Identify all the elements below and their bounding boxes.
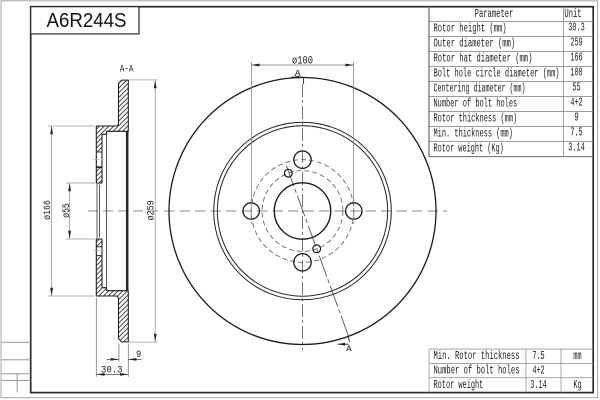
svg-text:7.5: 7.5 bbox=[532, 350, 544, 363]
svg-text:30.3: 30.3 bbox=[568, 22, 584, 35]
svg-text:ø259: ø259 bbox=[145, 200, 157, 220]
svg-text:Rotor height (mm): Rotor height (mm) bbox=[434, 23, 507, 36]
svg-text:Number of bolt holes: Number of bolt holes bbox=[434, 98, 518, 111]
svg-text:Bolt hole circle diameter (mm): Bolt hole circle diameter (mm) bbox=[434, 68, 560, 81]
svg-text:A6R244S: A6R244S bbox=[47, 9, 127, 32]
svg-text:Number of bolt holes: Number of bolt holes bbox=[434, 365, 520, 378]
svg-text:3.14: 3.14 bbox=[568, 142, 584, 155]
svg-text:100: 100 bbox=[570, 67, 582, 80]
svg-text:Parameter: Parameter bbox=[475, 8, 514, 21]
svg-text:9: 9 bbox=[136, 349, 141, 361]
svg-text:Rotor weight (Kg): Rotor weight (Kg) bbox=[434, 143, 504, 156]
svg-text:Rotor hat diameter (mm): Rotor hat diameter (mm) bbox=[434, 53, 533, 66]
svg-text:Centering diameter (mm): Centering diameter (mm) bbox=[434, 83, 526, 96]
svg-text:3.14: 3.14 bbox=[530, 379, 546, 392]
svg-text:4+2: 4+2 bbox=[570, 97, 582, 110]
svg-text:Outer diameter (mm): Outer diameter (mm) bbox=[434, 38, 516, 51]
svg-text:30.3: 30.3 bbox=[101, 364, 123, 376]
svg-text:A-A: A-A bbox=[120, 64, 134, 75]
svg-text:ø55: ø55 bbox=[61, 203, 73, 218]
svg-text:259: 259 bbox=[570, 37, 582, 50]
svg-text:Rotor weight: Rotor weight bbox=[434, 379, 484, 392]
svg-text:9: 9 bbox=[574, 112, 579, 125]
svg-text:ø100: ø100 bbox=[292, 55, 313, 67]
svg-text:Rotor thickness (mm): Rotor thickness (mm) bbox=[434, 113, 518, 126]
svg-text:ø166: ø166 bbox=[42, 200, 54, 220]
svg-text:Min. thickness (mm): Min. thickness (mm) bbox=[434, 128, 513, 141]
svg-text:166: 166 bbox=[570, 52, 582, 65]
svg-text:7.5: 7.5 bbox=[570, 127, 582, 140]
svg-text:A: A bbox=[346, 344, 353, 354]
svg-text:mm: mm bbox=[573, 350, 581, 363]
svg-text:55: 55 bbox=[572, 82, 580, 95]
svg-text:Min. Rotor thickness: Min. Rotor thickness bbox=[434, 350, 520, 363]
svg-text:Unit: Unit bbox=[564, 8, 581, 21]
svg-text:Kg: Kg bbox=[573, 379, 581, 392]
svg-text:4+2: 4+2 bbox=[532, 365, 544, 378]
